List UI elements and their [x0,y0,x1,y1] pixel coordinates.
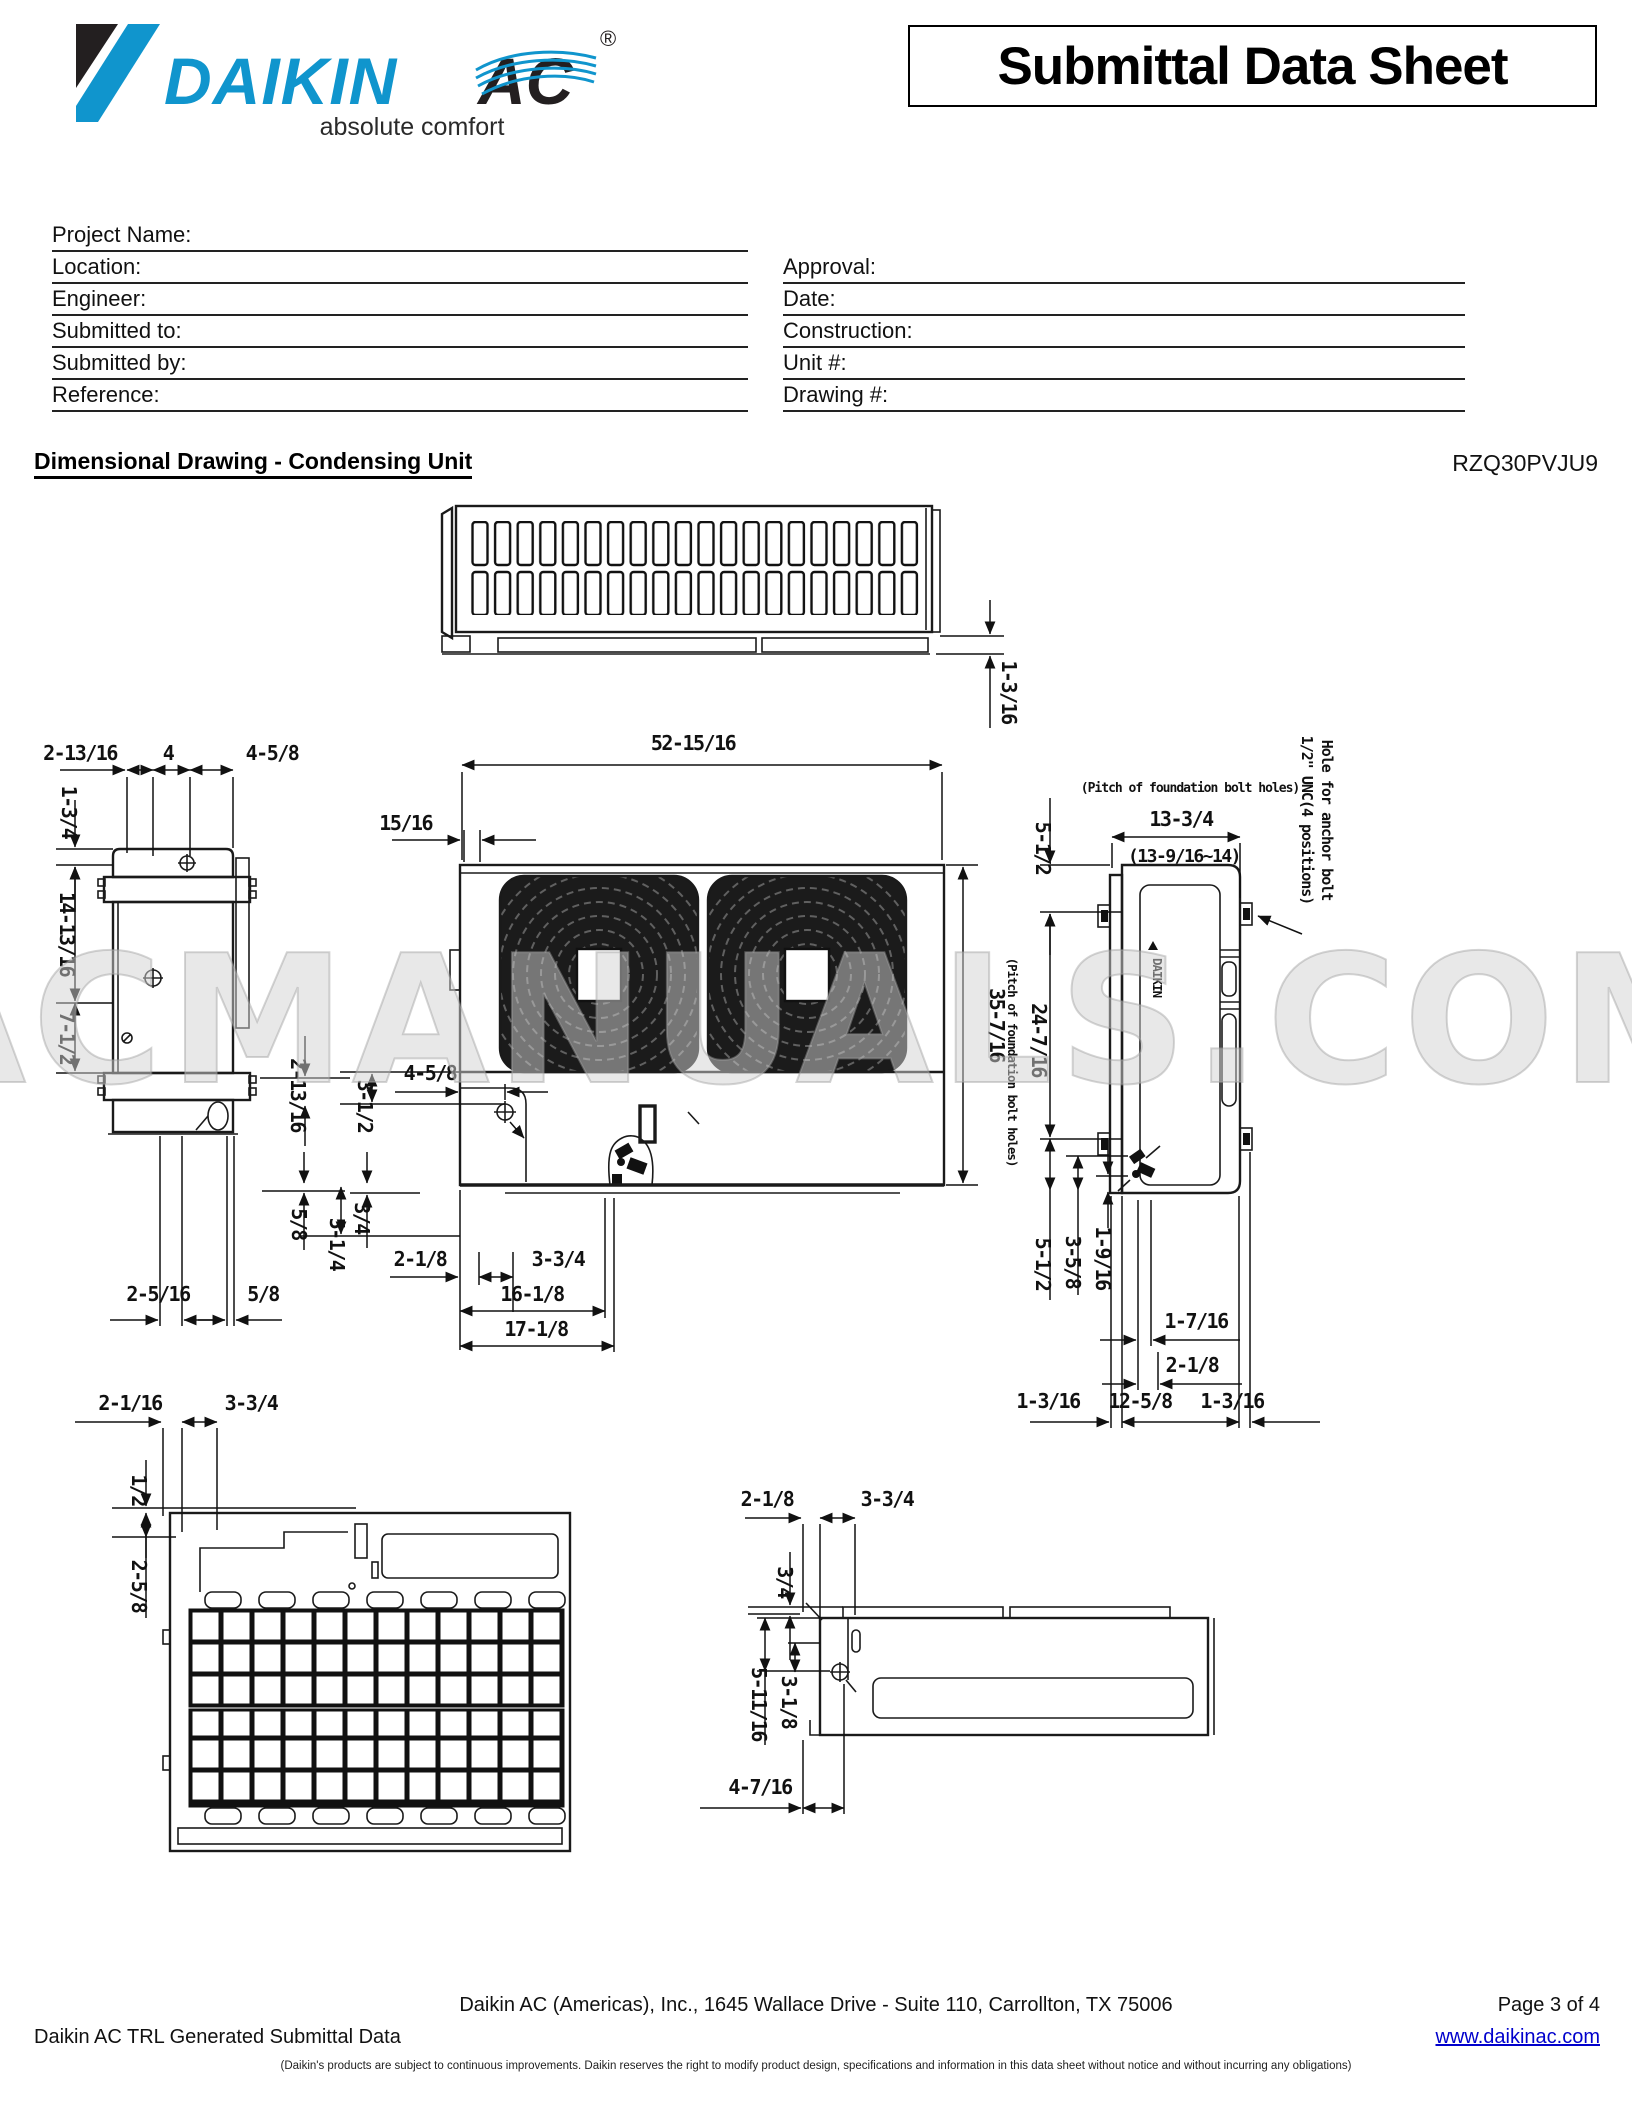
dim-label: 52-15/16 [651,731,736,755]
footer-generated-note: Daikin AC TRL Generated Submittal Data [34,2026,401,2049]
dim-label: 2-5/16 [126,1282,190,1306]
dim-label: 3-3/4 [861,1487,915,1511]
dim-label: 2-1/16 [98,1391,162,1415]
dim-label: 5-11/16 [747,1667,771,1741]
back-view [163,1513,570,1851]
dim-label: 3-5/8 [1061,1236,1085,1289]
dim-label: 1-3/16 [1200,1389,1264,1413]
dim-label: 5/8 [247,1282,279,1306]
dim-label: 5-1/4 [325,1218,349,1272]
dim-label: 2-1/8 [1166,1353,1219,1377]
footer-address: Daikin AC (Americas), Inc., 1645 Wallace… [0,1994,1632,2017]
back-view-dimensions: 2-1/16 3-3/4 1/2 2-5/8 [75,1391,356,1618]
watermark: ACMANUALS.COM [0,917,1632,1124]
dim-label: 1-3/16 [997,660,1021,724]
dim-label: 12-5/8 [1108,1389,1172,1413]
top-view [442,506,940,654]
dim-label: 3-3/4 [225,1391,279,1415]
note-label: (Pitch of foundation bolt holes) [1081,781,1299,796]
dim-label: 2-1/8 [741,1487,794,1511]
bottom-tab-row [205,1808,565,1824]
dim-label: 5-1/2 [1031,1238,1055,1291]
dim-label: 3-3/4 [532,1247,586,1271]
dim-label: 2-13/16 [43,741,117,765]
top-view-dimensions: 1-3/16 [936,600,1021,728]
dim-label: 2-1/8 [394,1247,447,1271]
dim-label: 3-1/8 [777,1676,801,1729]
plan-view [806,1603,1214,1735]
dim-label: 4-7/16 [728,1775,792,1799]
plan-view-dimensions: 2-1/8 3-3/4 3/4 5-11/16 3-1/8 4-7/16 [700,1487,915,1814]
dim-label: 17-1/8 [504,1317,568,1341]
dim-label: 1-7/16 [1164,1309,1228,1333]
dim-label: 2-5/8 [127,1560,151,1613]
footer-disclaimer: (Daikin's products are subject to contin… [0,2060,1632,2072]
dim-label: 15/16 [379,811,432,835]
submittal-data-sheet-page: DAIKIN AC ® absolute comfort Submittal D… [0,0,1632,2112]
dim-label: 3/4 [350,1202,374,1235]
top-tab-row [205,1592,565,1608]
dim-label: 16-1/8 [500,1282,564,1306]
dim-label: 5-1/2 [1031,822,1055,875]
screw-icon [178,854,196,872]
dim-label: (13-9/16~14) [1128,846,1240,867]
note-label: Hole for anchor bolt [1318,740,1336,901]
screw-icon [830,1662,856,1692]
footer-website-link[interactable]: www.daikinac.com [1435,2026,1600,2049]
dim-label: 4 [163,741,175,765]
dim-label: 3/4 [773,1566,797,1599]
dimensional-drawing: 1-3/16 [0,0,1632,2112]
note-label: 1/2" UNC(4 positions) [1298,736,1316,905]
refrigerant-valves [609,1136,653,1185]
footer-page-number: Page 3 of 4 [1498,1994,1600,2017]
dim-label: 1-3/4 [57,786,81,840]
dim-label: 4-5/8 [246,741,299,765]
dim-label: 13-3/4 [1149,807,1214,831]
dim-label: 1/2 [127,1474,151,1506]
dim-label: 1-3/16 [1016,1389,1080,1413]
